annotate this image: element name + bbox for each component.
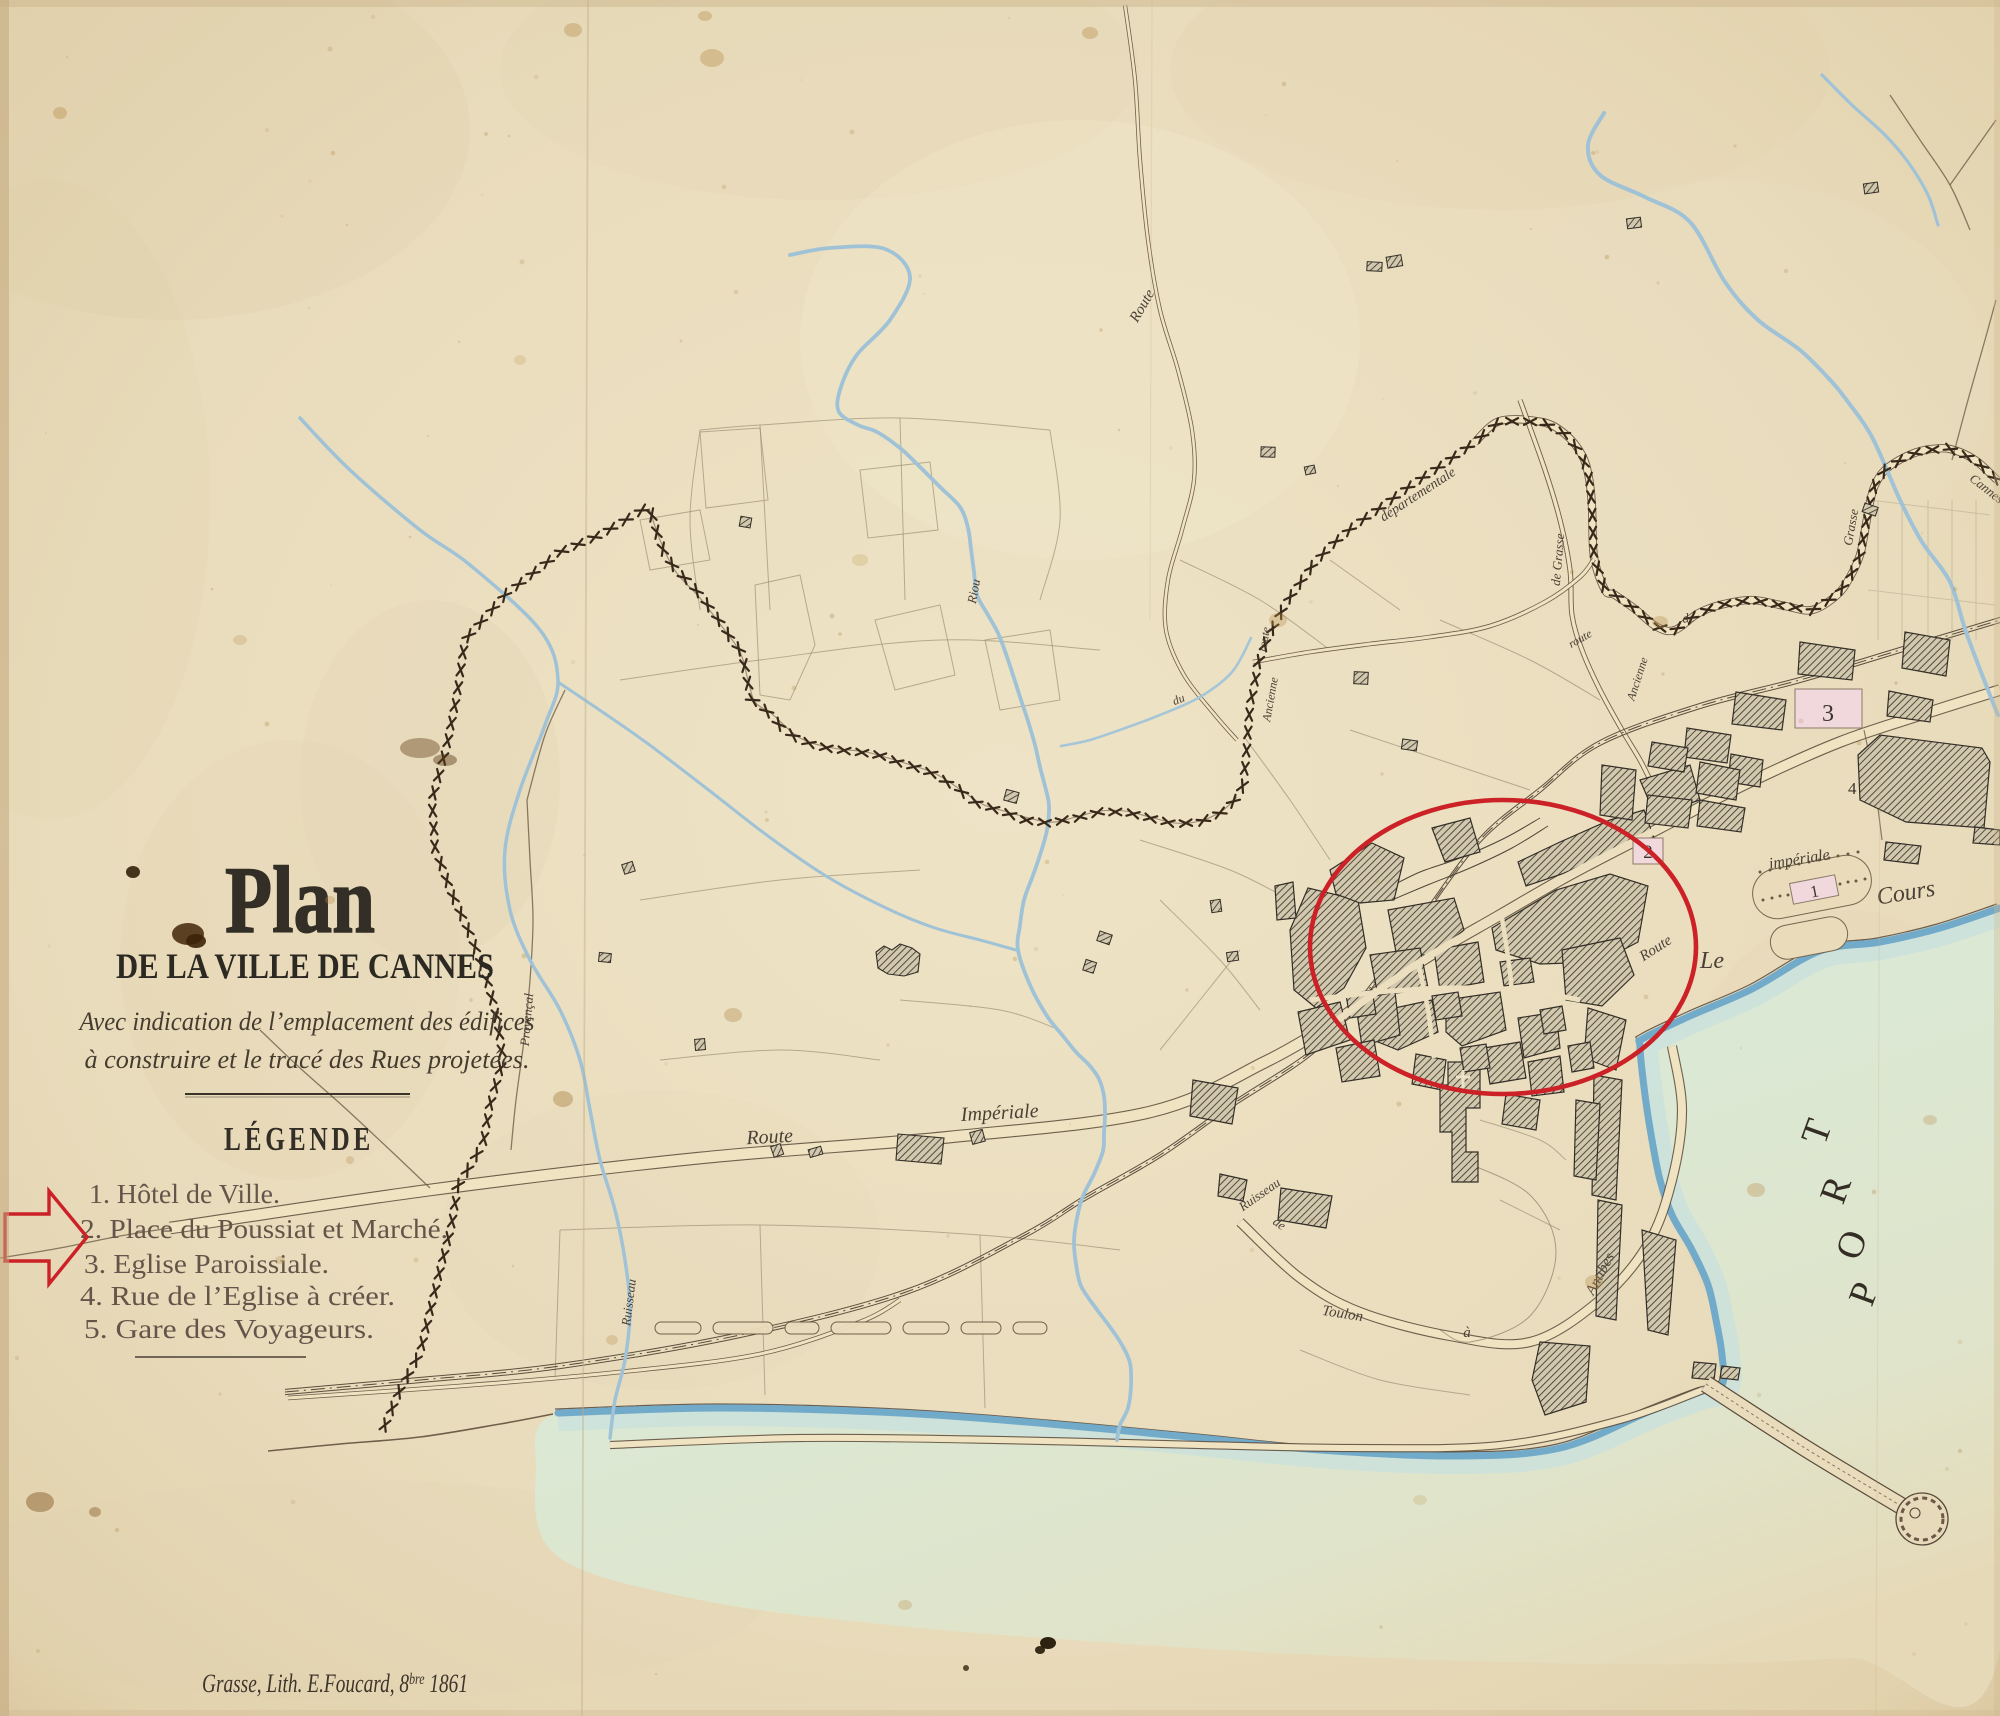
svg-text:1. Hôtel de Ville.: 1. Hôtel de Ville. (89, 1179, 280, 1209)
svg-text:Route: Route (745, 1125, 794, 1149)
svg-text:Le: Le (1699, 948, 1724, 974)
svg-text:à: à (1463, 1325, 1471, 1341)
svg-text:2. Place du Poussiat et Marché: 2. Place du Poussiat et Marché. (80, 1214, 448, 1244)
svg-text:Avec indication de l’emplaceme: Avec indication de l’emplacement des édi… (78, 1007, 535, 1036)
svg-text:à construire et le tracé des R: à construire et le tracé des Rues projet… (85, 1045, 530, 1074)
svg-text:DE LA VILLE DE CANNES: DE LA VILLE DE CANNES (116, 946, 494, 986)
svg-text:Plan: Plan (225, 847, 375, 953)
svg-text:5. Gare des Voyageurs.: 5. Gare des Voyageurs. (84, 1314, 374, 1344)
svg-text:LÉGENDE: LÉGENDE (224, 1121, 374, 1158)
svg-text:3. Eglise Paroissiale.: 3. Eglise Paroissiale. (84, 1249, 329, 1279)
svg-text:4. Rue de l’Eglise à créer.: 4. Rue de l’Eglise à créer. (80, 1281, 395, 1311)
svg-text:4: 4 (1848, 779, 1857, 798)
svg-text:Grasse, Lith. E.Foucard, 8bre: Grasse, Lith. E.Foucard, 8bre 1861 (202, 1669, 468, 1698)
svg-text:de: de (1681, 609, 1695, 626)
svg-text:Impériale: Impériale (959, 1100, 1039, 1126)
svg-text:3: 3 (1822, 701, 1834, 727)
